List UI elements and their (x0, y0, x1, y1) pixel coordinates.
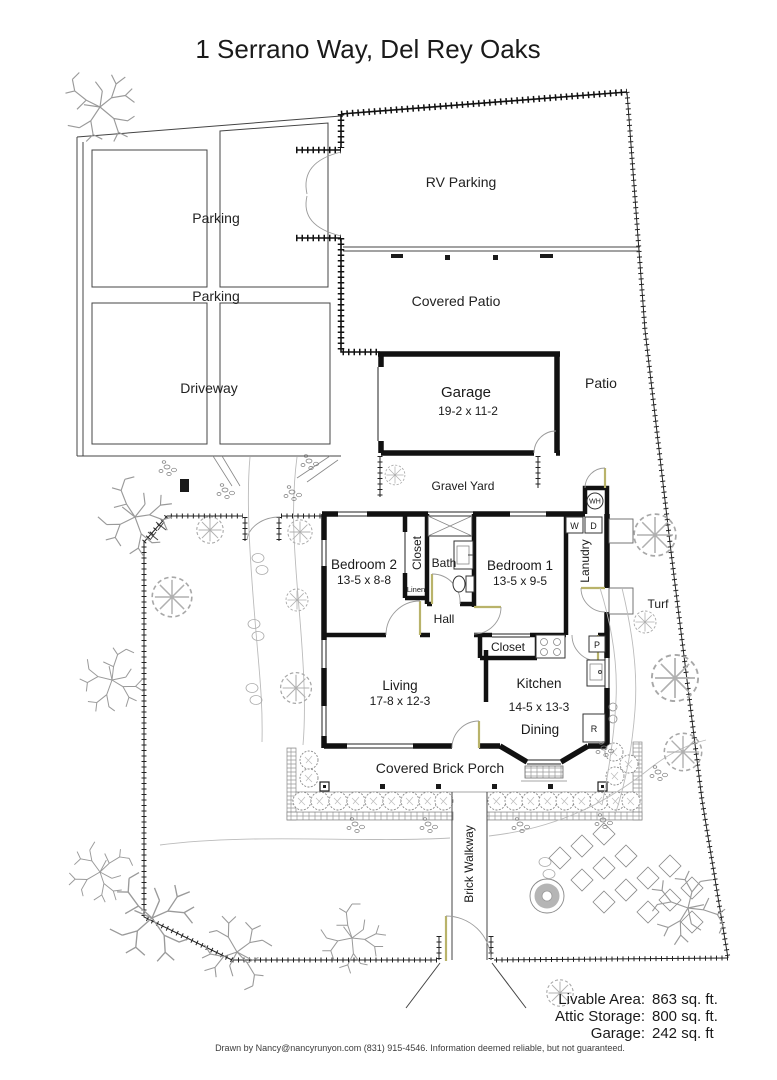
west-yard-gate (245, 517, 280, 541)
rv-gate-leaf-top (306, 152, 341, 194)
covered-patio-area: Covered Patio (343, 247, 640, 309)
toilet-tank (466, 576, 474, 592)
bedroom1-dims: 13-5 x 9-5 (493, 574, 547, 588)
bedroom2-dims: 13-5 x 8-8 (337, 573, 391, 587)
linen-label: Linen (407, 585, 425, 594)
parking-upper-label: Parking (192, 210, 239, 226)
garage-dims: 19-2 x 11-2 (438, 404, 498, 418)
garage: Garage 19-2 x 11-2 (378, 354, 560, 497)
turf-label: Turf (648, 597, 670, 611)
page-title: 1 Serrano Way, Del Rey Oaks (195, 34, 540, 64)
living-label: Living (382, 678, 417, 693)
floor-plan-page: 1 Serrano Way, Del Rey Oaks Parking Park… (0, 0, 777, 1080)
parking-lower-label: Parking (192, 288, 239, 304)
bath-fixtures (428, 516, 474, 592)
brick-walkway-label: Brick Walkway (462, 825, 476, 903)
dining-label: Dining (521, 722, 559, 737)
rv-parking-label: RV Parking (426, 174, 497, 190)
rv-gate-leaf-bottom (306, 196, 341, 236)
driveway-label: Driveway (180, 380, 238, 396)
kitchen-dims: 14-5 x 13-3 (509, 700, 570, 714)
yard-post (180, 479, 189, 492)
parking-area: Parking Parking Driveway (92, 123, 330, 492)
covered-patio-label: Covered Patio (412, 293, 501, 309)
area-summary: Livable Area: 863 sq. ft. Attic Storage:… (555, 991, 718, 1042)
garage-label: Garage (441, 384, 491, 401)
hall-label: Hall (434, 612, 455, 626)
rv-parking-area: RV Parking (296, 114, 496, 352)
kitchen-label: Kitchen (516, 676, 561, 691)
attic-storage-value: 800 sq. ft. (652, 1008, 718, 1025)
garage-area-label: Garage: (591, 1025, 645, 1042)
living-dims: 17-8 x 12-3 (370, 694, 431, 708)
livable-area-label: Livable Area: (558, 991, 645, 1008)
bedroom2-label: Bedroom 2 (331, 557, 397, 572)
brick-walkway-area: Brick Walkway (406, 792, 526, 1008)
laundry-fixtures: W D (566, 517, 602, 533)
livable-area-value: 863 sq. ft. (652, 991, 718, 1008)
garden-paths (159, 455, 706, 845)
water-heater-label: WH (589, 499, 601, 506)
hall-closet-label: Closet (491, 640, 526, 654)
pantry-label: P (594, 640, 600, 650)
laundry-label: Lanudry (578, 539, 592, 582)
site-plan-drawing: 1 Serrano Way, Del Rey Oaks Parking Park… (0, 0, 777, 1080)
toilet-bowl (453, 576, 465, 592)
stove (536, 635, 565, 658)
bedroom1-label: Bedroom 1 (487, 558, 553, 573)
patio-label: Patio (585, 375, 617, 391)
attic-storage-label: Attic Storage: (555, 1008, 645, 1025)
diamond-pavers (549, 823, 703, 933)
garage-area-value: 242 sq. ft (652, 1025, 715, 1042)
turf-area: Turf (609, 519, 669, 614)
gravel-yard-label: Gravel Yard (432, 479, 495, 493)
dryer-label: D (590, 521, 597, 531)
washer-label: W (570, 521, 579, 531)
bedroom2-closet-label: Closet (410, 535, 424, 570)
bath-label: Bath (432, 556, 457, 570)
refrigerator-label: R (591, 724, 598, 734)
water-heater-closet: WH (585, 468, 607, 514)
credit-line: Drawn by Nancy@nancyrunyon.com (831) 915… (215, 1043, 625, 1053)
bay-window-steps (525, 766, 563, 778)
covered-brick-porch: Covered Brick Porch (287, 742, 642, 820)
porch-label: Covered Brick Porch (376, 760, 504, 776)
garage-door-arc (534, 431, 556, 453)
